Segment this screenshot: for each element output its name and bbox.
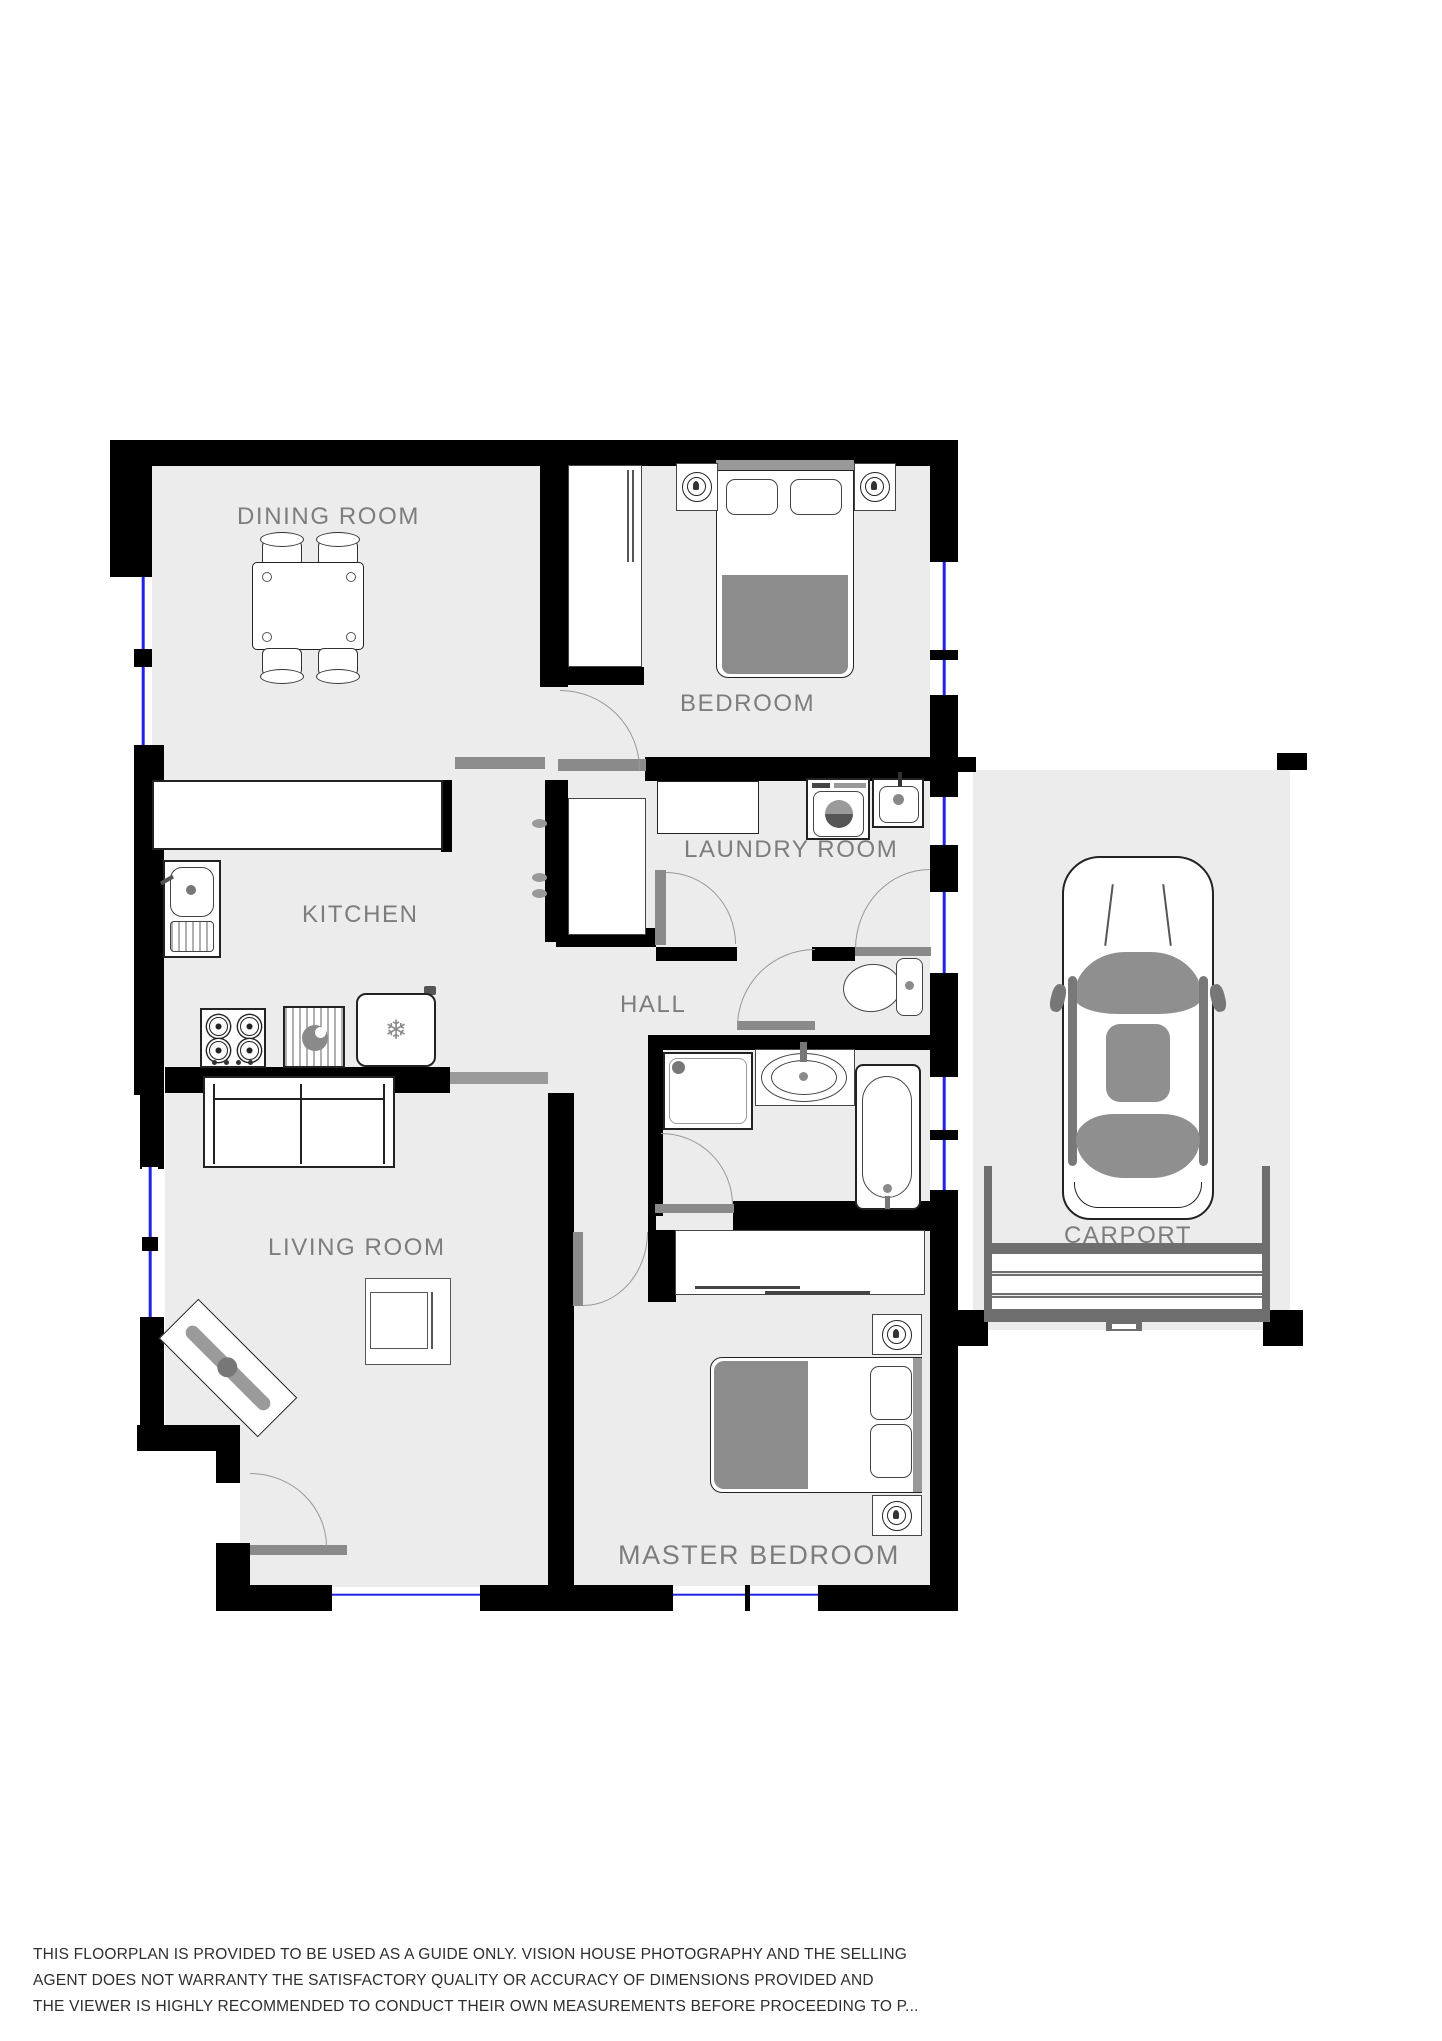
wall-dining-bedroom [540,465,568,687]
door-leaf-master [573,1232,583,1306]
shower [663,1052,753,1130]
wall-hook-icon [532,873,547,882]
bed-blanket [722,575,848,674]
wall-right-3 [930,845,958,892]
master-bed-blanket [714,1361,808,1489]
cooktop-knob [236,1060,241,1065]
dining-chair [262,648,302,676]
hall-closet [568,798,646,935]
wall-segment [140,1317,164,1429]
wardrobe-rail [695,1286,800,1289]
washing-machine [806,778,870,840]
wall-hook-icon [532,889,547,898]
door-leaf-laundry [655,870,666,945]
disclaimer-line: AGENT DOES NOT WARRANTY THE SATISFACTORY… [33,1968,919,1994]
basin-faucet [800,1042,807,1062]
kitchen-counter [152,780,443,850]
wall-living-master [548,1093,574,1610]
lamp-icon [860,472,890,502]
dining-chair [318,648,358,676]
garage-door-slat [990,1252,1264,1273]
burner-icon [209,1041,228,1060]
cooktop-knob [248,1060,253,1065]
fridge: ❄ [356,993,436,1067]
wall-step-vertical [216,1451,240,1483]
toilet-button [905,981,914,990]
car-trunk-line [1074,1182,1202,1208]
window-laundry [932,797,956,845]
master-bedroom-label: MASTER BEDROOM [618,1540,900,1571]
threshold-dining-hall [455,757,545,769]
master-headboard [913,1358,922,1492]
wall-under-wardrobe [568,667,644,685]
window-living-bottom [332,1588,480,1601]
living-room-label: LIVING ROOM [268,1234,446,1262]
kitchen-label: KITCHEN [302,901,419,929]
door-leaf-bathroom [655,1204,734,1213]
garage-door-bottom [984,1311,1270,1322]
carport-step [930,757,976,772]
disclaimer-line: THIS FLOORPLAN IS PROVIDED TO BE USED AS… [33,1942,919,1968]
threshold-living-hall [450,1072,548,1084]
armchair [365,1278,451,1365]
car-side-window [1199,976,1208,1166]
wall-segment [930,1130,958,1140]
window-bath-1 [932,1077,956,1130]
bed-headboard [716,460,854,470]
window-dining-1 [134,577,152,649]
wall-right-1 [930,465,958,562]
faucet-icon [186,885,196,895]
disclaimer-text: THIS FLOORPLAN IS PROVIDED TO BE USED AS… [33,1942,919,2020]
wall-master-left-stub [648,1230,676,1302]
wall-right-2 [930,695,958,797]
wall-right-5 [930,1190,958,1610]
dishwasher-logo-icon [302,1025,328,1051]
nightstand [854,463,896,511]
cooktop-knob [212,1060,217,1065]
bathtub [855,1064,921,1210]
burner-icon [240,1017,259,1036]
nightstand [872,1495,922,1536]
window-master-bottom-2 [750,1588,818,1601]
window-bedroom-1 [932,562,956,650]
wall-toilet-a [656,947,737,961]
wall-segment [142,1237,158,1251]
window-master-bottom-1 [673,1588,745,1601]
table-leg [346,572,356,582]
floorplan: DINING ROOM BEDROOM KITCHEN [0,0,1442,2041]
window-bedroom-2 [932,660,956,695]
laundry-bench [657,781,759,834]
garage-door-slat [990,1296,1264,1311]
window-living-1 [142,1167,158,1237]
wall-right-4 [930,973,958,1077]
lamp-icon [882,1320,912,1350]
nightstand [676,463,718,511]
shower-head-icon [672,1061,685,1074]
wardrobe-rail [765,1291,870,1294]
burner-icon [209,1017,228,1036]
wall-segment [930,650,958,660]
bedroom-label: BEDROOM [680,690,815,718]
car-roof-box [1106,1024,1170,1102]
wardrobe-rail [627,470,629,562]
hall-label: HALL [620,991,686,1019]
bedroom-wardrobe [568,465,642,667]
cooktop [200,1008,266,1068]
cooktop-knob [224,1060,229,1065]
laundry-sink [872,778,924,828]
window-dining-2 [134,667,152,745]
laundry-room-label: LAUNDRY ROOM [684,836,898,864]
lamp-icon [882,1501,912,1531]
disclaimer-line: THE VIEWER IS HIGHLY RECOMMENDED TO COND… [33,1994,919,2020]
garage-door-slat [990,1274,1264,1295]
car-rear-window [1076,1114,1200,1178]
carport-post-topright [1277,753,1307,770]
wall-topleft-corner [110,440,152,577]
table-leg [262,572,272,582]
wall-segment [134,649,152,667]
garage-door-handle [1106,1322,1142,1331]
nightstand [872,1314,922,1355]
garage-door-top [984,1243,1270,1252]
pillow [870,1424,912,1478]
window-toilet [932,892,956,973]
car-windshield [1074,952,1202,1014]
snowflake-icon: ❄ [385,1015,408,1046]
pillow [790,479,842,515]
window-bath-2 [932,1140,956,1190]
wall-bottom-living-a [240,1585,332,1611]
dishwasher [283,1006,345,1068]
pillow [726,479,778,515]
wall-toilet-b [812,947,855,961]
window-living-2 [142,1251,158,1317]
wall-kitchen-right [545,780,568,942]
sofa [203,1076,395,1168]
car [1062,856,1214,1220]
burner-icon [240,1041,259,1060]
sink-drainer [170,921,214,952]
wall-step-horizontal [137,1425,240,1451]
table-leg [346,632,356,642]
wall-bath-bottom [733,1201,958,1231]
pillow [870,1366,912,1420]
wall-hook-icon [532,819,547,828]
table-leg [262,632,272,642]
dining-room-label: DINING ROOM [237,503,420,531]
wall-segment [140,1095,164,1169]
basin-drain [799,1072,808,1081]
wardrobe-rail [632,470,634,562]
wall-bottom-master-a [574,1585,673,1611]
washer-drum-icon [825,800,853,828]
lamp-icon [682,472,712,502]
